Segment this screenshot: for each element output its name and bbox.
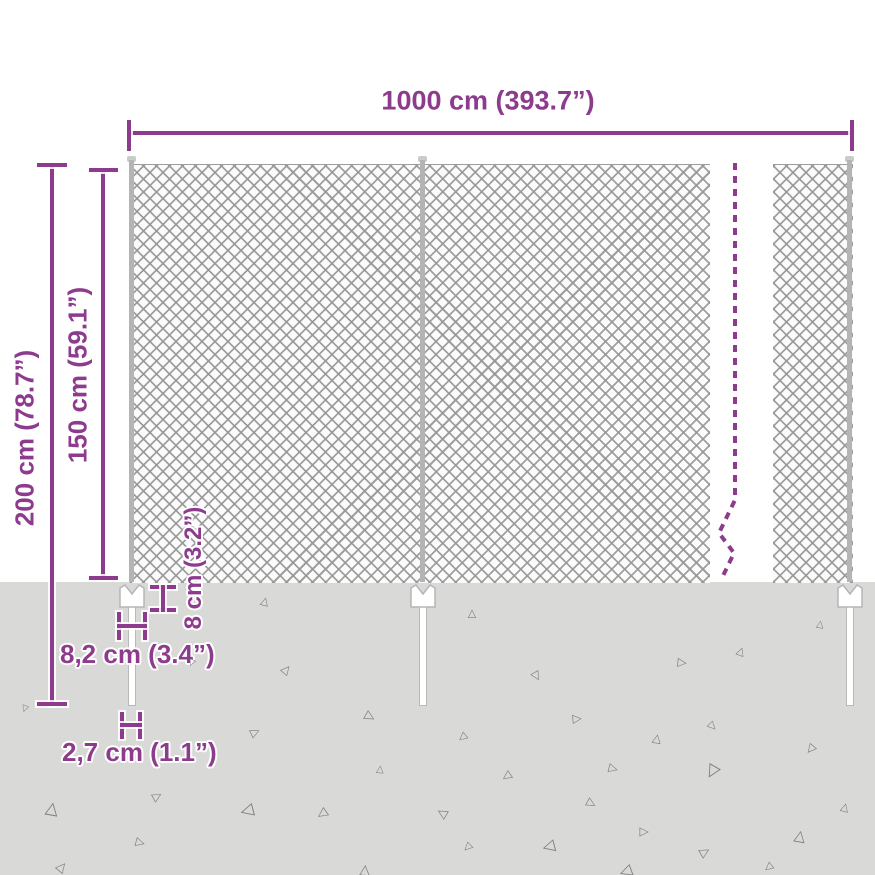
spike-width-marker-cross (120, 723, 142, 727)
fence-dimension-diagram: 1000 cm (393.7”) 200 cm (78.7”) 150 cm (… (0, 0, 875, 875)
mesh-panel-right (773, 164, 853, 583)
width-dimension-label: 1000 cm (393.7”) (381, 86, 594, 117)
width-dimension-tick-right (850, 120, 854, 151)
anchor-width-marker-cross (117, 624, 147, 628)
spike-width-label: 2,7 cm (1.1”) (62, 737, 217, 768)
width-dimension-tick-left (127, 120, 131, 151)
post-spike-right (846, 604, 854, 706)
fence-post-middle (420, 160, 425, 582)
total-height-cap-bottom (37, 702, 67, 706)
post-spike-middle (419, 604, 427, 706)
fence-post-right (847, 160, 852, 582)
width-dimension-line (129, 131, 852, 135)
post-anchor-cap-right (837, 584, 863, 608)
mesh-height-dimension-label: 150 cm (59.1”) (63, 287, 94, 463)
fence-post-left (129, 160, 134, 582)
mesh-height-cap-top (89, 168, 118, 172)
anchor-height-marker-stem (161, 585, 165, 612)
anchor-width-label: 8,2 cm (3.4”) (60, 639, 215, 670)
post-anchor-cap-left (119, 584, 145, 608)
total-height-dimension-line (50, 163, 54, 706)
post-anchor-cap-middle (410, 584, 436, 608)
anchor-height-label: 8 cm (3.2”) (180, 507, 208, 630)
total-height-cap-top (37, 163, 67, 167)
total-height-dimension-label: 200 cm (78.7”) (10, 350, 41, 526)
fence-break-dashed-line (700, 155, 760, 595)
mesh-height-dimension-line (101, 168, 105, 580)
mesh-height-cap-bottom (89, 576, 118, 580)
